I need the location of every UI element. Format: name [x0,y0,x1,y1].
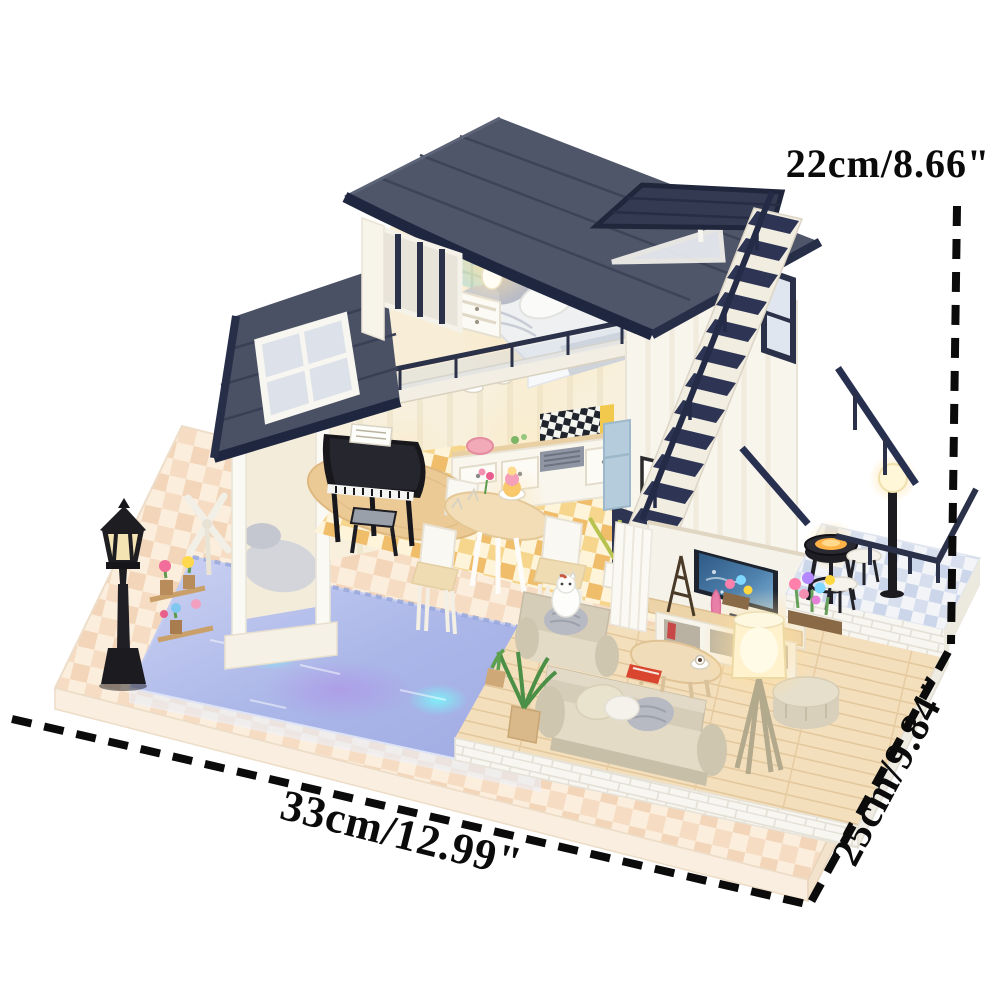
dollhouse-illustration: 22cm/8.66" 33cm/12.99" 25cm/9.84" [0,0,1000,1000]
fridge [604,420,630,510]
sheet-music [350,424,392,446]
pink-pot [467,438,493,454]
product-photo: 22cm/8.66" 33cm/12.99" 25cm/9.84" [0,0,1000,1000]
curtain [610,522,652,632]
pool-led-light [408,684,468,716]
height-dimension-label: 22cm/8.66" [786,141,990,186]
